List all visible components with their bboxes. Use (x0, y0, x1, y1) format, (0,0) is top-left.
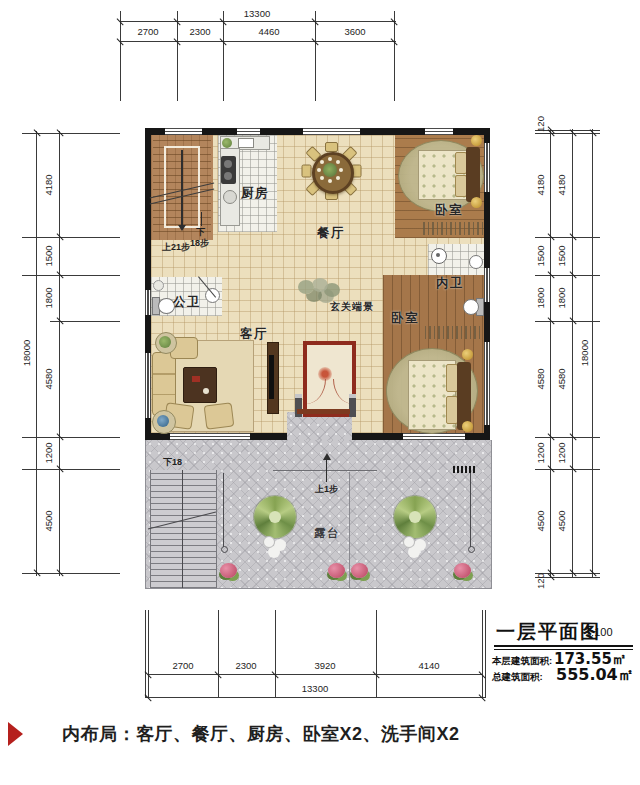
bedroom2-label: 卧室 (391, 310, 419, 327)
dimension-line (535, 275, 600, 276)
dining-label: 餐厅 (317, 225, 345, 242)
bedroom2-lamp2 (462, 421, 473, 432)
terrace-up-arrowhead (323, 453, 331, 460)
dimension-label: 1500 (556, 245, 567, 266)
dining-chair (325, 142, 338, 152)
entry-threshold (297, 409, 350, 414)
window (403, 433, 465, 440)
dimension-line (376, 610, 377, 698)
bedroom2-headboard (457, 362, 471, 430)
terrace-plant-left-center (269, 511, 281, 523)
drawing-scale: 1:100 (585, 626, 613, 638)
dining-chair (302, 165, 312, 178)
dimension-line (145, 610, 146, 698)
caption-text: 内布局：客厅、餐厅、厨房、卧室X2、洗手间X2 (62, 722, 460, 746)
kitchen-kettle (223, 190, 237, 204)
dining-table-set (304, 144, 356, 196)
title-block: 一层平面图 1:100 本层建筑面积: 173.55㎡ 总建筑面积: 555.0… (488, 615, 638, 690)
dimension-label: 1500 (43, 245, 54, 266)
window (303, 128, 360, 135)
living-coffee-table (183, 367, 217, 403)
kitchen-plant (222, 138, 232, 148)
pubbath-fixture (153, 280, 164, 291)
dimension-line (36, 131, 37, 576)
flower-pot-1 (220, 563, 237, 578)
dimension-line (22, 437, 120, 438)
stair-down-steps: 18步 (190, 237, 209, 250)
floor-plan-page: 1330027002300446036001330027002300392041… (0, 0, 640, 785)
stair-direction-line (181, 150, 183, 226)
stair-down-arrow (201, 212, 202, 226)
window (165, 128, 202, 135)
flower-pot-2 (328, 563, 345, 578)
flower-pot-3 (351, 563, 368, 578)
dimension-line (148, 674, 482, 675)
dimension-line (218, 610, 219, 698)
dimension-label: 4140 (418, 660, 439, 671)
exterior-stairs-rail (182, 470, 183, 588)
total-area-label: 总建筑面积: (492, 671, 543, 684)
terrace-rail-right-end (468, 546, 475, 553)
dimension-line (535, 321, 600, 322)
window (484, 342, 490, 425)
dimension-line (22, 469, 120, 470)
dining-centerpiece (323, 163, 337, 177)
dimension-line (485, 610, 486, 698)
kitchen-sink (238, 138, 254, 148)
dimension-label: 18000 (21, 340, 32, 366)
dimension-label: 3600 (344, 26, 365, 37)
stove-burner1 (224, 160, 232, 168)
title-underline (494, 645, 633, 647)
dimension-line (148, 610, 149, 698)
dimension-label: 4500 (556, 510, 567, 531)
terrace-balustrade (453, 466, 477, 473)
foyer-rug-curve-left (306, 379, 326, 404)
ensuite-toilet-bowl (463, 299, 479, 315)
dimension-label: 1800 (556, 287, 567, 308)
terrace-plant-right-pebbles (403, 536, 415, 548)
window (237, 128, 260, 135)
terrace-rail-right (470, 473, 471, 547)
foyer-label: 玄关端景 (330, 300, 374, 314)
flower-pot-4 (454, 563, 471, 578)
dimension-label: 4500 (535, 510, 546, 531)
dimension-line (572, 129, 573, 578)
dimension-line (482, 610, 483, 698)
dimension-label: 2300 (189, 26, 210, 37)
terrace-up-label: 上1步 (315, 483, 338, 496)
bedroom1-lamp2 (471, 197, 482, 208)
total-area-value: 555.04㎡ (556, 665, 634, 686)
living-side-plant (159, 336, 171, 348)
caption-bar: 内布局：客厅、餐厅、厨房、卧室X2、洗手间X2 (0, 714, 640, 760)
foyer-lamp-right (349, 394, 356, 417)
dimension-line (535, 237, 600, 238)
terrace-up-arrow (326, 459, 327, 482)
terrace-plant-left-pebbles (263, 536, 275, 548)
dimension-line (275, 610, 276, 698)
window (484, 143, 490, 192)
dimension-label: 18000 (579, 340, 590, 366)
floor-area-label: 本层建筑面积: (492, 655, 552, 668)
stove-burner2 (224, 172, 232, 180)
foyer-plant (298, 280, 314, 294)
bedroom1-label: 卧室 (435, 202, 463, 219)
dimension-label: 13300 (244, 8, 270, 19)
terrace-rail-left-end (221, 546, 228, 553)
dimension-line (535, 469, 600, 470)
dimension-label: 4460 (258, 26, 279, 37)
dimension-line (120, 41, 396, 42)
terrace-label: 露台 (314, 526, 340, 541)
exterior-stairs (150, 470, 217, 588)
stair-up-label: 上21步 (162, 241, 190, 254)
dimension-label: 4180 (535, 174, 546, 195)
dimension-line (59, 131, 60, 576)
ensuite-label: 内卫 (436, 275, 464, 292)
terrace-down-label: 下18 (163, 456, 182, 469)
dimension-line (22, 275, 120, 276)
dimension-label: 4500 (43, 510, 54, 531)
kitchen-label: 厨房 (241, 185, 269, 202)
living-blue-plate (157, 415, 169, 427)
bedroom1-headboard (466, 147, 480, 202)
dimension-line (550, 129, 551, 578)
dimension-label: 1500 (535, 245, 546, 266)
living-armchair-b2 (204, 402, 235, 429)
dimension-line (145, 697, 486, 698)
dimension-label: 4580 (556, 368, 567, 389)
dimension-label: 2700 (137, 26, 158, 37)
window (425, 128, 453, 135)
dimension-label: 2300 (235, 660, 256, 671)
dimension-label: 13300 (302, 683, 328, 694)
bedroom2-wardrobe (425, 326, 481, 339)
terrace-plant-right-center (409, 511, 421, 523)
bedroom1-wardrobe (423, 222, 483, 235)
dimension-label: 1200 (556, 442, 567, 463)
window (484, 268, 490, 302)
dimension-line (535, 437, 600, 438)
dimension-label: 120 (535, 573, 546, 589)
dimension-label: 1800 (535, 287, 546, 308)
coffee-table-dot (203, 388, 209, 394)
ensuite-sink (469, 255, 483, 269)
dimension-label: 4180 (43, 174, 54, 195)
dimension-label: 1800 (43, 287, 54, 308)
dimension-label: 4580 (535, 368, 546, 389)
dimension-line (535, 133, 600, 134)
dimension-label: 3920 (314, 660, 335, 671)
bedroom1-lamp1 (471, 135, 482, 146)
terrace-divider (349, 472, 350, 588)
pubbath-label: 公卫 (173, 294, 201, 311)
dimension-line (592, 129, 593, 578)
window (170, 433, 250, 440)
dimension-label: 2700 (172, 660, 193, 671)
dimension-label: 1200 (43, 442, 54, 463)
terrace-rail-left (223, 473, 224, 547)
dimension-line (22, 237, 120, 238)
stair-arrowhead (178, 225, 186, 231)
tv-screen (269, 355, 274, 399)
caption-arrow-icon (8, 722, 23, 746)
dimension-label: 4580 (43, 368, 54, 389)
bedroom2-lamp1 (462, 349, 473, 360)
dimension-label: 120 (535, 116, 546, 132)
pubbath-sink (205, 288, 220, 303)
dimension-line (120, 21, 396, 22)
dimension-label: 4180 (556, 174, 567, 195)
ensuite-shower-dot (436, 253, 440, 257)
entry-step-line (273, 470, 377, 471)
living-label: 客厅 (240, 326, 268, 343)
dimension-label: 1200 (535, 442, 546, 463)
coffee-table-deco (192, 376, 200, 382)
